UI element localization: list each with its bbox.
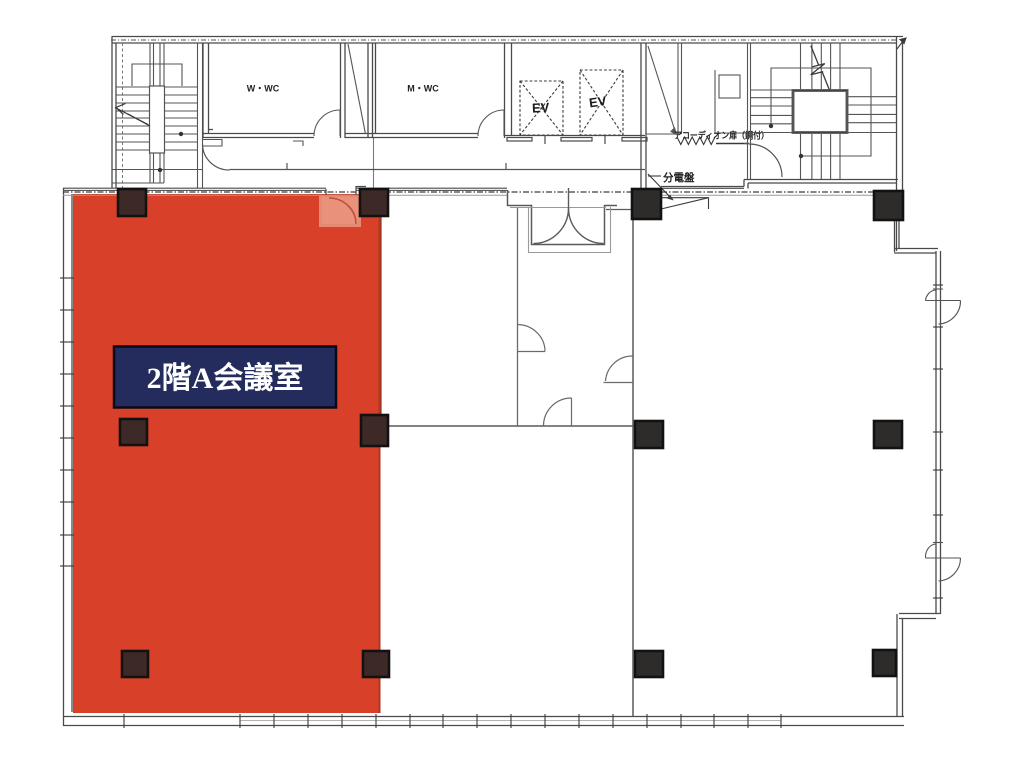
svg-text:EV: EV [588, 93, 608, 110]
svg-text:分電盤: 分電盤 [663, 171, 695, 184]
svg-text:2階A会議室: 2階A会議室 [147, 361, 304, 395]
svg-text:M・WC: M・WC [407, 84, 439, 94]
svg-text:EV: EV [532, 100, 550, 116]
svg-text:W・WC: W・WC [247, 84, 280, 94]
svg-text:アコーディオン扉（鋼付）: アコーディオン扉（鋼付） [674, 130, 769, 141]
